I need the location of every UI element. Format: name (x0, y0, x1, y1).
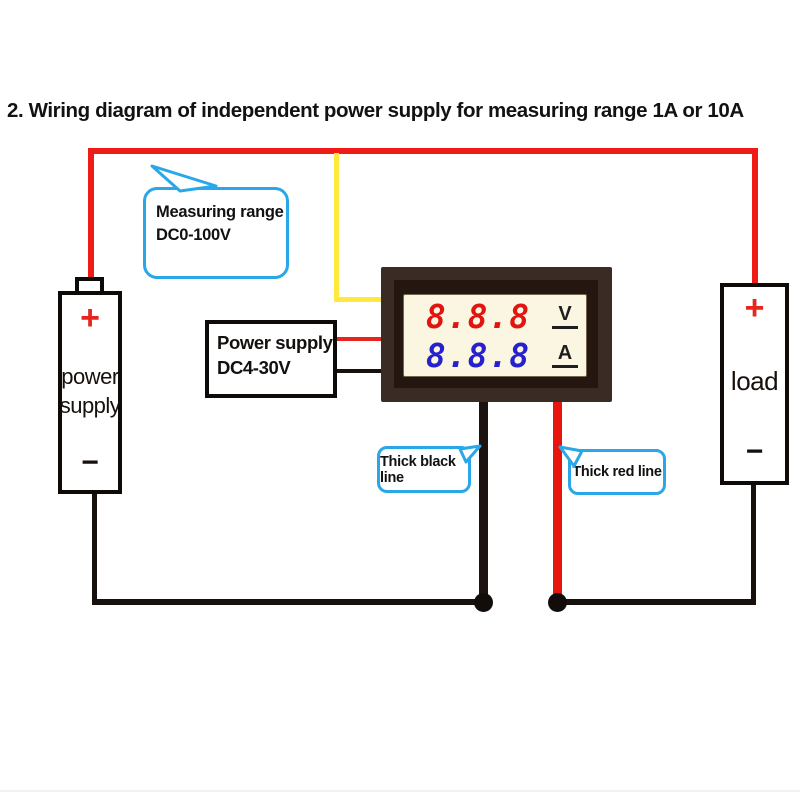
wire-yellow-sense-horizontal (334, 297, 382, 302)
load-symbol: + load − (720, 283, 789, 485)
current-row: 8.8.8 A (404, 336, 586, 375)
power-supply-spec-box: Power supply DC4-30V (205, 320, 337, 398)
measuring-range-line2: DC0-100V (156, 226, 286, 245)
bottom-edge-line (0, 790, 800, 792)
measuring-range-line1: Measuring range (156, 203, 286, 222)
measuring-range-callout: Measuring range DC0-100V (143, 187, 289, 279)
voltage-row: 8.8.8 V (404, 297, 586, 336)
junction-dot-red (548, 593, 567, 612)
wire-red-powersupply-positive (88, 148, 94, 281)
meter-display: 8.8.8 V 8.8.8 A (403, 294, 587, 377)
plus-sign: + (745, 291, 765, 325)
digital-panel-meter: 8.8.8 V 8.8.8 A (381, 267, 612, 402)
callout-tail (146, 158, 226, 194)
thick-red-line-label: Thick red line (572, 464, 661, 480)
current-unit: A (552, 342, 578, 368)
wire-yellow-sense-vertical (334, 153, 339, 302)
thick-black-line (479, 400, 488, 602)
wire-black-bottom-right (556, 599, 756, 605)
power-supply-label-line1: power (60, 363, 121, 392)
minus-sign: − (81, 448, 99, 478)
load-label: load (731, 366, 778, 397)
plus-sign: + (80, 301, 100, 335)
wiring-diagram-page: 2. Wiring diagram of independent power s… (0, 0, 800, 800)
thick-black-line-label: Thick black line (380, 454, 468, 486)
power-supply-spec-line2: DC4-30V (217, 357, 333, 379)
voltage-unit: V (552, 303, 578, 329)
voltage-reading: 8.8.8 (404, 300, 552, 333)
power-supply-label: power supply (60, 363, 121, 420)
junction-dot-black (474, 593, 493, 612)
power-supply-label-line2: supply (60, 392, 121, 421)
callout-tail (556, 442, 584, 468)
callout-tail (456, 440, 482, 464)
minus-sign: − (746, 437, 764, 467)
page-title: 2. Wiring diagram of independent power s… (7, 99, 787, 123)
wire-black-bottom-left (92, 599, 484, 605)
wire-red-load-positive (752, 148, 758, 286)
power-supply-symbol: + power supply − (58, 291, 122, 494)
current-reading: 8.8.8 (404, 339, 552, 372)
power-supply-spec-line1: Power supply (217, 332, 333, 354)
wire-red-top (88, 148, 758, 154)
thick-red-line (553, 400, 562, 602)
